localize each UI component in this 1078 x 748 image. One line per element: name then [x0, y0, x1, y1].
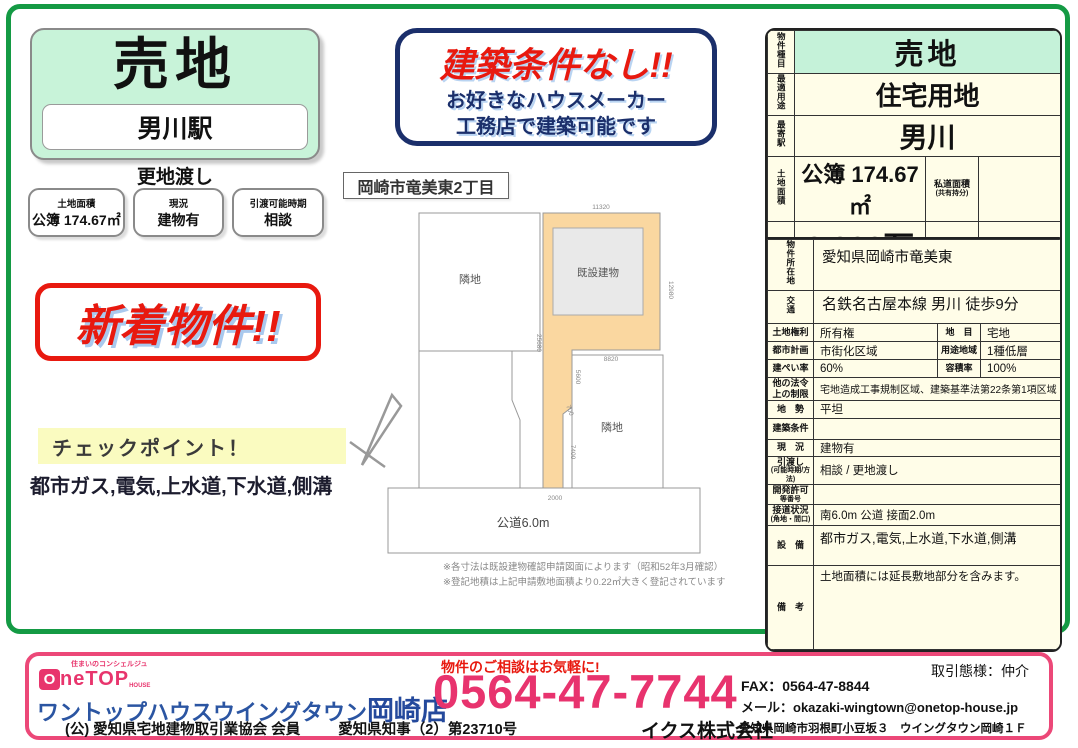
site-plan-notes: ※各寸法は既設建物確認申請図面によります（昭和52年3月確認） ※登記地積は上記…: [443, 560, 763, 590]
logo-wordmark: neTOP: [60, 668, 129, 691]
handover-box: 引渡可能時期 相談: [232, 188, 324, 237]
site-plan-note-2: ※登記地積は上記申請敷地面積より0.22㎡大きく登記されています: [443, 575, 763, 590]
terrain-value: 平坦: [814, 400, 1061, 418]
banner-subline-1: お好きなハウスメーカー: [400, 88, 712, 114]
floor-ratio-label: 容積率: [938, 360, 981, 378]
type-label: 物件種目: [777, 32, 786, 68]
land-rights-value: 所有権: [814, 324, 938, 342]
coverage-ratio-label: 建ぺい率: [768, 360, 814, 378]
handover-method-value: 相談 / 更地渡し: [814, 456, 1061, 485]
address-value: 愛知県岡崎市竜美東: [814, 240, 1061, 291]
dim-left: 25680: [535, 334, 542, 352]
station-box: 男川駅: [42, 104, 308, 150]
road-label: 公道6.0m: [497, 516, 550, 530]
private-road-label-sub: (共有持分): [927, 190, 977, 198]
use-value: 住宅用地: [795, 74, 1061, 116]
property-flyer: { "left_panel": { "title": "売地", "statio…: [0, 0, 1078, 748]
details-table: 物件所在地 愛知県岡崎市竜美東 交通 名鉄名古屋本線 男川 徒歩9分 土地権利 …: [765, 237, 1062, 652]
type-value: 売地: [795, 31, 1061, 74]
transport-value: 名鉄名古屋本線 男川 徒歩9分: [814, 291, 1061, 324]
handover-method-label: 引渡し: [777, 457, 804, 467]
handover-value: 相談: [264, 210, 292, 230]
phone-number: 0564-47-7744: [433, 664, 738, 719]
checkpoint-utilities-text: 都市ガス,電気,上水道,下水道,側溝: [30, 470, 360, 499]
company-logo: O neTOP HOUSE: [39, 668, 150, 691]
logo-o-mark: O: [39, 669, 60, 690]
sale-type-title: 売地: [32, 30, 318, 100]
area-value: 公簿 174.67㎡: [795, 157, 926, 222]
floor-ratio-value: 100%: [981, 360, 1061, 378]
dim-right: 12980: [667, 281, 674, 299]
new-property-badge-text: 新着物件!!: [75, 290, 280, 354]
land-category-value: 宅地: [981, 324, 1061, 342]
dim-bottom: 2000: [548, 495, 563, 502]
building-conditions-value: [814, 418, 1061, 439]
banner-subline-2: 工務店で建築可能です: [400, 114, 712, 140]
nearest-station-label: 最寄駅: [777, 120, 786, 147]
city-planning-value: 市街化区域: [814, 342, 938, 360]
no-building-conditions-banner: 建築条件なし!! お好きなハウスメーカー 工務店で建築可能です: [395, 28, 717, 146]
current-state-box: 現況 建物有: [133, 188, 225, 237]
dim-top: 11320: [592, 204, 610, 211]
transaction-type: 取引態様：仲介: [931, 661, 1029, 681]
land-area-value: 公簿 174.67㎡: [32, 210, 121, 230]
banner-headline: 建築条件なし!!: [400, 37, 712, 88]
development-permit-label-2: 等番号: [769, 496, 812, 504]
address-label: 物件所在地: [786, 240, 795, 285]
land-area-label: 土地面積: [57, 196, 95, 210]
land-area-box: 土地面積 公簿 174.67㎡: [28, 188, 125, 237]
private-road-label: 私道面積: [934, 179, 970, 189]
land-category-label: 地 目: [938, 324, 981, 342]
current-status-label: 現 況: [768, 439, 814, 456]
license-number: 愛知県知事（2）第23710号: [338, 722, 517, 738]
facilities-label: 設 備: [768, 525, 814, 565]
private-road-value: [979, 157, 1061, 222]
current-status-value: 建物有: [814, 439, 1061, 456]
delivery-note: 更地渡し: [30, 162, 320, 189]
zoning-value: 1種低層: [981, 342, 1061, 360]
other-laws-label-2: 上の制限: [769, 389, 812, 400]
development-permit-label: 開発許可: [772, 485, 808, 495]
neighbor-lower-left-parcel: [419, 351, 520, 488]
road-frontage-label-2: (角地・間口): [769, 516, 812, 524]
building-conditions-label: 建築条件: [768, 418, 814, 439]
terrain-label: 地 勢: [768, 400, 814, 418]
current-state-value: 建物有: [158, 210, 200, 230]
footer-company-bar: 住まいのコンシェルジュ O neTOP HOUSE ワントップハウスウイングタウ…: [25, 652, 1053, 740]
handover-method-label-2: (可能時期/方法): [769, 467, 812, 484]
remarks-label: 備 考: [768, 565, 814, 649]
development-permit-value: [814, 485, 1061, 505]
land-rights-label: 土地権利: [768, 324, 814, 342]
membership-line: (公) 愛知県宅地建物取引業協会 会員 愛知県知事（2）第23710号: [65, 718, 517, 739]
north-arrow-crossbar: [350, 442, 385, 467]
info-boxes: 土地面積 公簿 174.67㎡ 現況 建物有 引渡可能時期 相談: [28, 188, 324, 237]
city-planning-label: 都市計画: [768, 342, 814, 360]
neighbor-left-label: 隣地: [459, 272, 481, 286]
new-property-badge: 新着物件!!: [35, 283, 321, 361]
coverage-ratio-value: 60%: [814, 360, 938, 378]
site-plan-note-1: ※各寸法は既設建物確認申請図面によります（昭和52年3月確認）: [443, 560, 763, 575]
station-name: 男川駅: [137, 109, 212, 145]
site-plan-title: 岡崎市竜美東2丁目: [343, 172, 509, 199]
existing-building-label: 既設建物: [577, 266, 619, 279]
transport-label: 交通: [786, 296, 795, 314]
fax-number: FAX：0564-47-8844: [741, 676, 869, 696]
checkpoint-title: チェックポイント！: [38, 428, 346, 464]
email-address: メール：okazaki-wingtown@onetop-house.jp: [741, 697, 1018, 716]
facilities-value: 都市ガス,電気,上水道,下水道,側溝: [814, 525, 1061, 565]
dim-inner: 5600: [574, 370, 581, 385]
sale-type-box: 売地 男川駅: [30, 28, 320, 160]
road-frontage-label: 接道状況: [772, 505, 808, 515]
dim-lower: 7400: [569, 445, 576, 460]
handover-label: 引渡可能時期: [250, 196, 307, 210]
nearest-station-value: 男川: [795, 116, 1061, 157]
zoning-label: 用途地域: [938, 342, 981, 360]
association-membership: (公) 愛知県宅地建物取引業協会 会員: [65, 722, 300, 738]
use-label: 最適用途: [777, 74, 786, 110]
dim-mid: 8820: [604, 356, 619, 363]
road-frontage-value: 南6.0m 公道 接面2.0m: [814, 505, 1061, 525]
other-laws-label: 他の法令: [772, 378, 808, 388]
neighbor-right-label: 隣地: [601, 420, 623, 434]
remarks-value: 土地面積には延長敷地部分を含みます。: [814, 565, 1061, 649]
office-address: 愛知県岡崎市羽根町小豆坂３ ウイングタウン岡崎１Ｆ: [739, 720, 1027, 736]
area-label: 土地面積: [777, 169, 786, 205]
current-state-label: 現況: [169, 196, 188, 210]
other-laws-value: 宅地造成工事規制区域、建築基準法第22条第1項区域: [814, 378, 1061, 401]
